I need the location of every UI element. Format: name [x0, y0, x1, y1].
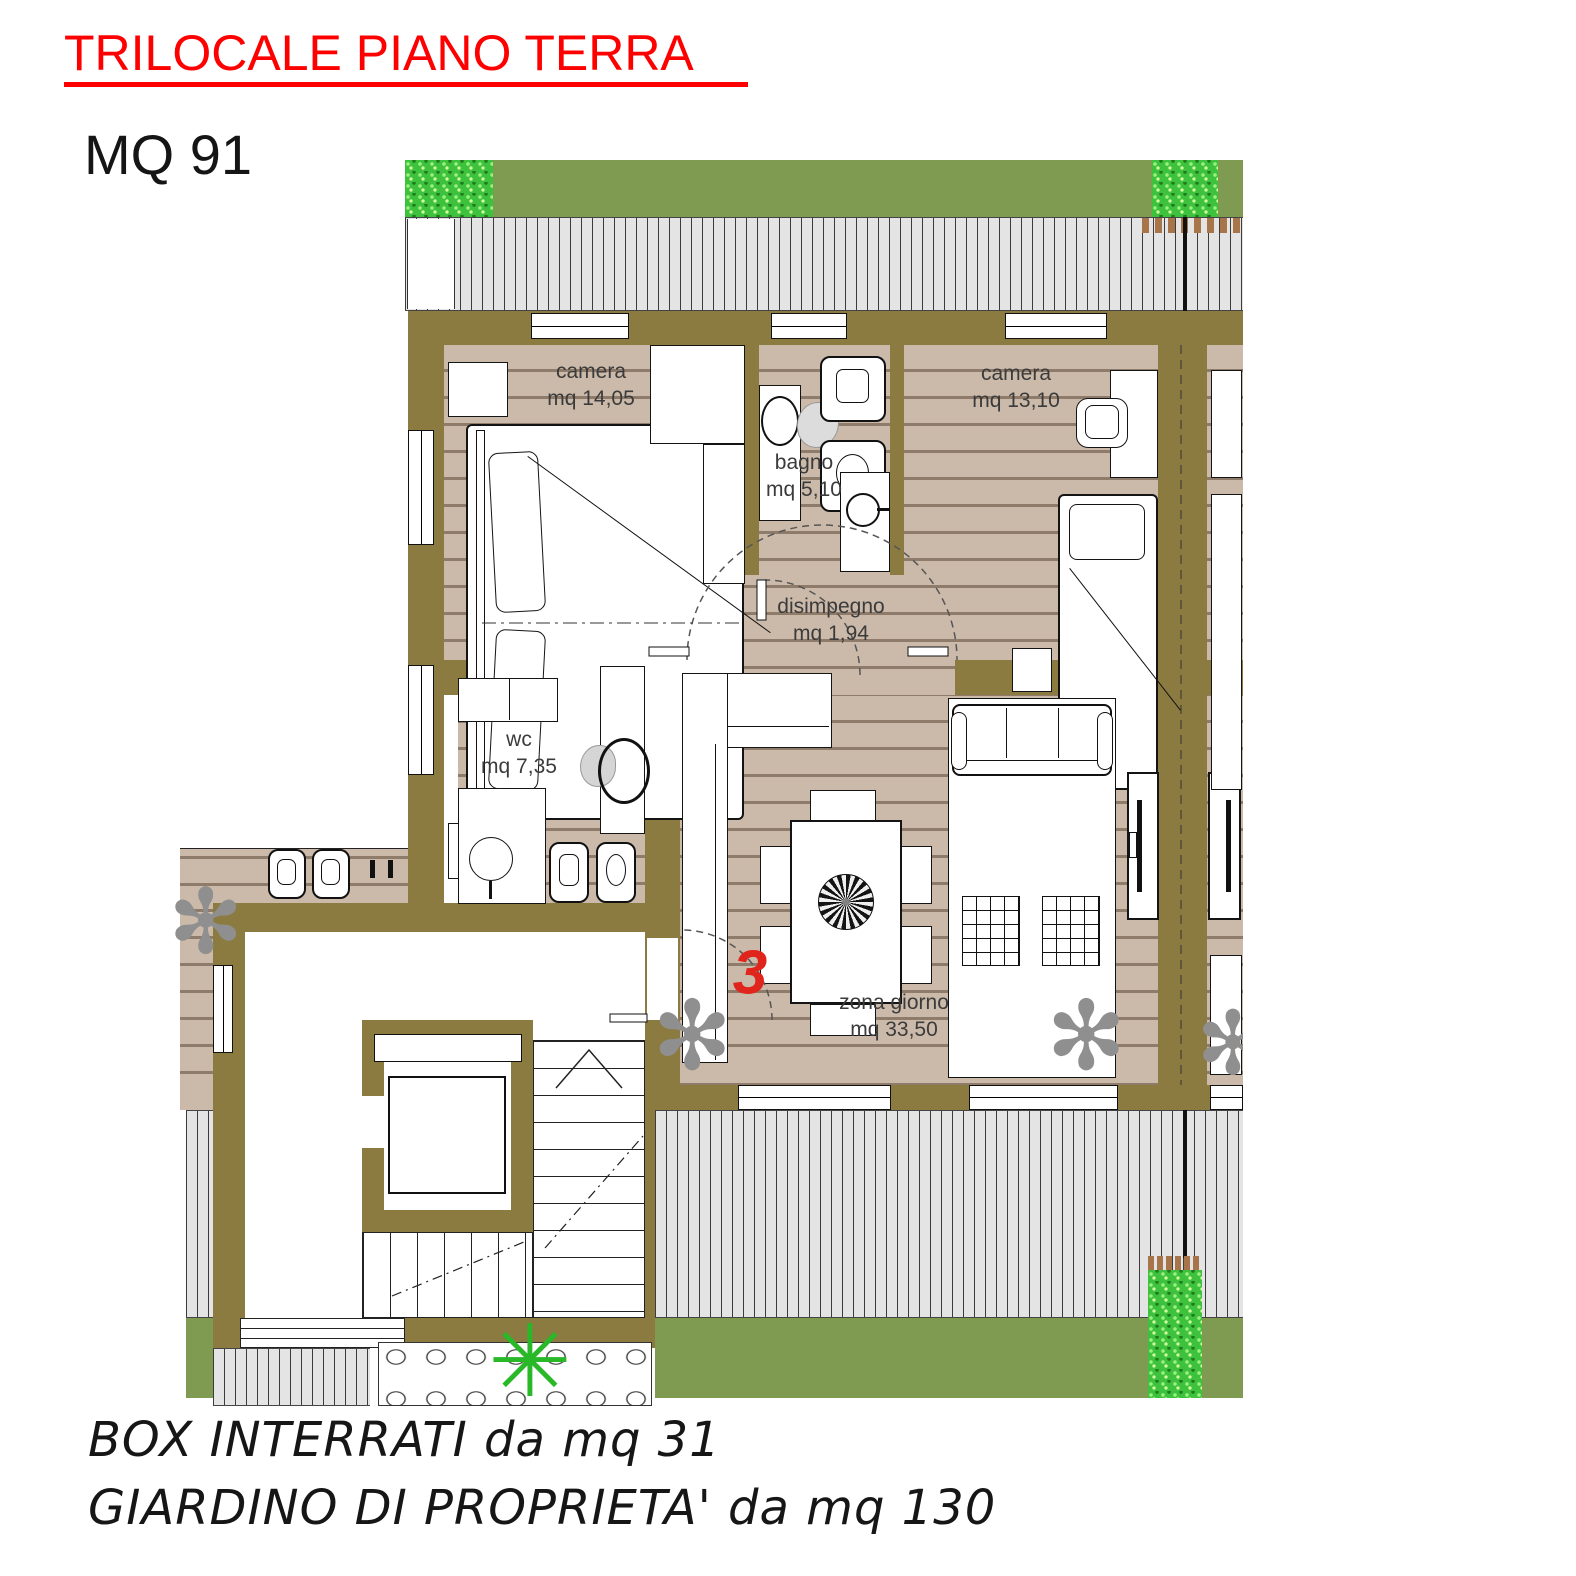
dining-chair	[810, 790, 876, 822]
sofa-seam	[1006, 708, 1007, 758]
fence-post	[1166, 1256, 1172, 1270]
deck-left-strip	[186, 1110, 213, 1318]
stairs-flight-right	[533, 1040, 645, 1318]
room-label-zona-giorno: zona giorno mq 33,50	[839, 989, 949, 1043]
cabinet-divider	[509, 679, 510, 720]
flower-plant-clip: ✻	[1196, 1000, 1243, 1096]
wardrobe	[650, 345, 745, 444]
window-camera2	[1005, 313, 1107, 339]
dining-chair	[760, 846, 792, 904]
elevator-slab	[374, 1034, 522, 1062]
window-camera1	[531, 313, 629, 339]
sofa-seam	[1058, 708, 1059, 758]
tap-icon	[388, 860, 393, 878]
wardrobe-column	[703, 444, 745, 584]
room-name: disimpegno	[777, 593, 884, 620]
neighbor-toilet	[268, 849, 306, 899]
bed-mirror	[1211, 494, 1242, 790]
chair-seat	[1085, 405, 1119, 439]
page-title: TRILOCALE PIANO TERRA	[64, 24, 694, 82]
fence-post	[1207, 218, 1214, 233]
toilet-bowl	[277, 859, 296, 885]
nightstand	[1012, 648, 1052, 692]
unit-number: 3	[733, 938, 767, 1009]
room-label-wc: wc mq 7,35	[481, 726, 557, 780]
tv-screen	[1226, 800, 1231, 892]
dining-chair	[900, 846, 932, 904]
tap-icon	[489, 881, 492, 899]
counter-edge	[723, 726, 829, 727]
flower-plant-icon: ✻	[168, 878, 243, 968]
wc-bidet	[596, 842, 636, 903]
garden-bottom-left	[186, 1318, 213, 1398]
fence-post	[1157, 1256, 1163, 1270]
title-underline	[64, 82, 748, 87]
toilet-bowl	[559, 854, 579, 886]
room-label-camera2: camera mq 13,10	[972, 360, 1060, 414]
fence-post	[1155, 218, 1162, 233]
footer-line-1: BOX INTERRATI da mq 31	[88, 1412, 721, 1468]
dining-chair	[900, 926, 932, 984]
room-name: camera	[972, 360, 1060, 387]
shower-handle	[877, 508, 890, 511]
toilet-bowl	[836, 369, 869, 403]
bagno-toilet	[820, 356, 886, 422]
elevator-car	[388, 1076, 506, 1194]
room-label-camera1: camera mq 14,05	[547, 358, 635, 412]
garden-strip-top	[405, 160, 1243, 217]
fence-post	[1220, 218, 1227, 233]
fence-post	[1233, 218, 1240, 233]
shower-drain	[846, 493, 880, 527]
wall-hall-top	[213, 903, 645, 932]
tv-screen	[1137, 800, 1142, 892]
sofa-armrest	[1097, 712, 1113, 770]
sofa-armrest	[951, 712, 967, 770]
room-label-disimpegno: disimpegno mq 1,94	[777, 593, 884, 647]
sink-basin	[469, 837, 513, 881]
pillow	[488, 451, 546, 613]
sink-basin	[761, 396, 799, 446]
nightstand	[448, 362, 508, 417]
bidet-bowl	[606, 854, 626, 886]
room-name: zona giorno	[839, 989, 949, 1016]
bagno-shower	[840, 472, 890, 572]
fence-post	[1168, 218, 1175, 233]
footer-line-2: GIARDINO DI PROPRIETA' da mq 130	[88, 1480, 996, 1536]
wall-party	[1158, 345, 1207, 1110]
pouf	[962, 896, 1020, 966]
window-zona-1	[738, 1085, 891, 1110]
bush-top-left	[405, 160, 493, 217]
deck-top	[405, 217, 1243, 311]
window-hall	[213, 965, 233, 1053]
elevator-door-gap	[362, 1096, 384, 1148]
wall-bagno-camera2	[890, 345, 904, 575]
desk-chair	[1076, 398, 1128, 448]
pillow	[1069, 504, 1145, 560]
fence-post	[1175, 1256, 1181, 1270]
pouf	[1042, 896, 1100, 966]
desk-mirror	[1211, 370, 1242, 478]
room-size: mq 7,35	[481, 753, 557, 780]
property-fence-line-bottom	[1183, 1110, 1187, 1258]
deck-gate	[407, 219, 455, 309]
area-label: MQ 91	[84, 122, 252, 187]
table-centerpiece	[818, 874, 874, 930]
bush-top-right	[1152, 160, 1218, 217]
fence-post	[1184, 1256, 1190, 1270]
tv-bracket	[1129, 832, 1137, 858]
wall-left	[408, 311, 444, 932]
neighbor-bidet	[312, 849, 350, 899]
wc-toilet	[549, 842, 589, 903]
room-name: wc	[481, 726, 557, 753]
tap-icon	[370, 860, 375, 878]
fence-post	[1142, 218, 1149, 233]
flower-plant-icon: ✻	[1196, 1000, 1243, 1088]
palm-plant-icon: ✳	[488, 1312, 572, 1412]
wall-camera1-bagno	[745, 345, 759, 575]
property-fence-line-top	[1183, 217, 1187, 311]
flower-plant-icon: ✻	[1046, 988, 1126, 1084]
flower-plant-icon: ✻	[652, 988, 732, 1084]
tv-cabinet-mirror	[1208, 772, 1241, 920]
room-size: mq 33,50	[839, 1016, 949, 1043]
sofa	[952, 704, 1112, 776]
wc-cabinet-top	[458, 678, 558, 722]
sofa-seam	[954, 760, 1110, 761]
room-name: bagno	[766, 449, 842, 476]
tv-cabinet	[1127, 772, 1159, 920]
bidet-bowl	[321, 859, 340, 885]
window-camera1-left	[408, 430, 434, 545]
wc-shower-oval	[598, 738, 650, 804]
floor-plan-page: TRILOCALE PIANO TERRA MQ 91	[0, 0, 1576, 1576]
hedge-column	[1148, 1270, 1202, 1398]
room-size: mq 5,10	[766, 476, 842, 503]
window-bagno	[771, 313, 847, 339]
room-size: mq 13,10	[972, 387, 1060, 414]
room-name: camera	[547, 358, 635, 385]
fence-post	[1194, 218, 1201, 233]
room-size: mq 1,94	[777, 620, 884, 647]
wc-sink-cabinet	[458, 788, 546, 904]
window-wc-left	[408, 665, 434, 775]
deck-bottom-left	[213, 1348, 370, 1406]
fence-post	[1193, 1256, 1199, 1270]
room-label-bagno: bagno mq 5,10	[766, 449, 842, 503]
fence-post	[1148, 1256, 1154, 1270]
room-size: mq 14,05	[547, 385, 635, 412]
